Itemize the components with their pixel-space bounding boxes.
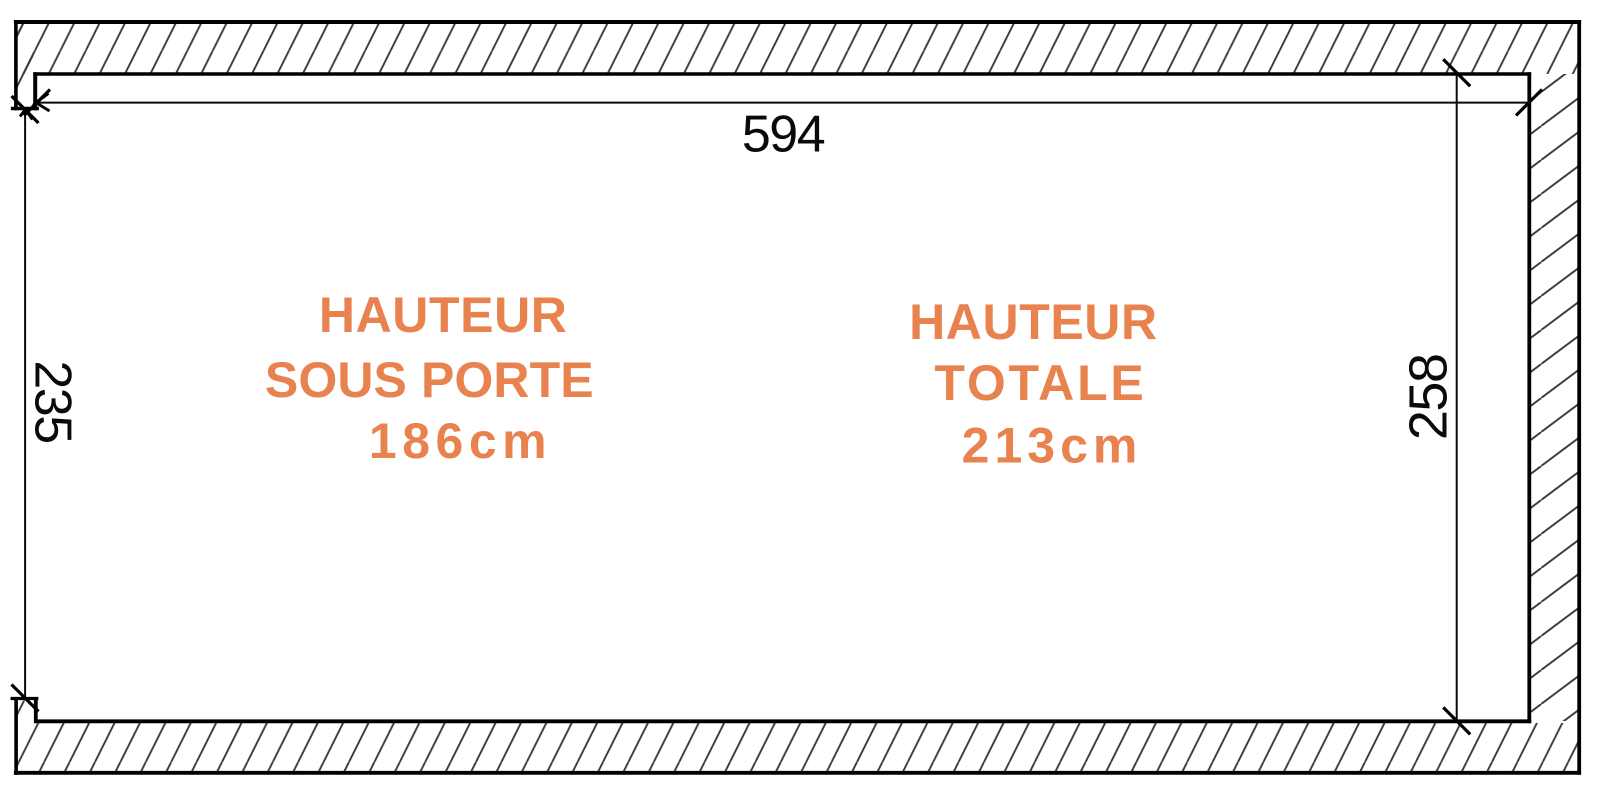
svg-text:186cm: 186cm xyxy=(369,413,552,469)
svg-text:HAUTEUR: HAUTEUR xyxy=(909,294,1158,350)
svg-text:SOUS PORTE: SOUS PORTE xyxy=(265,352,594,408)
svg-text:213cm: 213cm xyxy=(962,418,1143,474)
svg-text:235: 235 xyxy=(23,360,81,442)
svg-text:594: 594 xyxy=(742,106,825,164)
svg-text:TOTALE: TOTALE xyxy=(934,355,1146,411)
svg-text:258: 258 xyxy=(1398,354,1458,440)
svg-text:HAUTEUR: HAUTEUR xyxy=(319,287,568,343)
